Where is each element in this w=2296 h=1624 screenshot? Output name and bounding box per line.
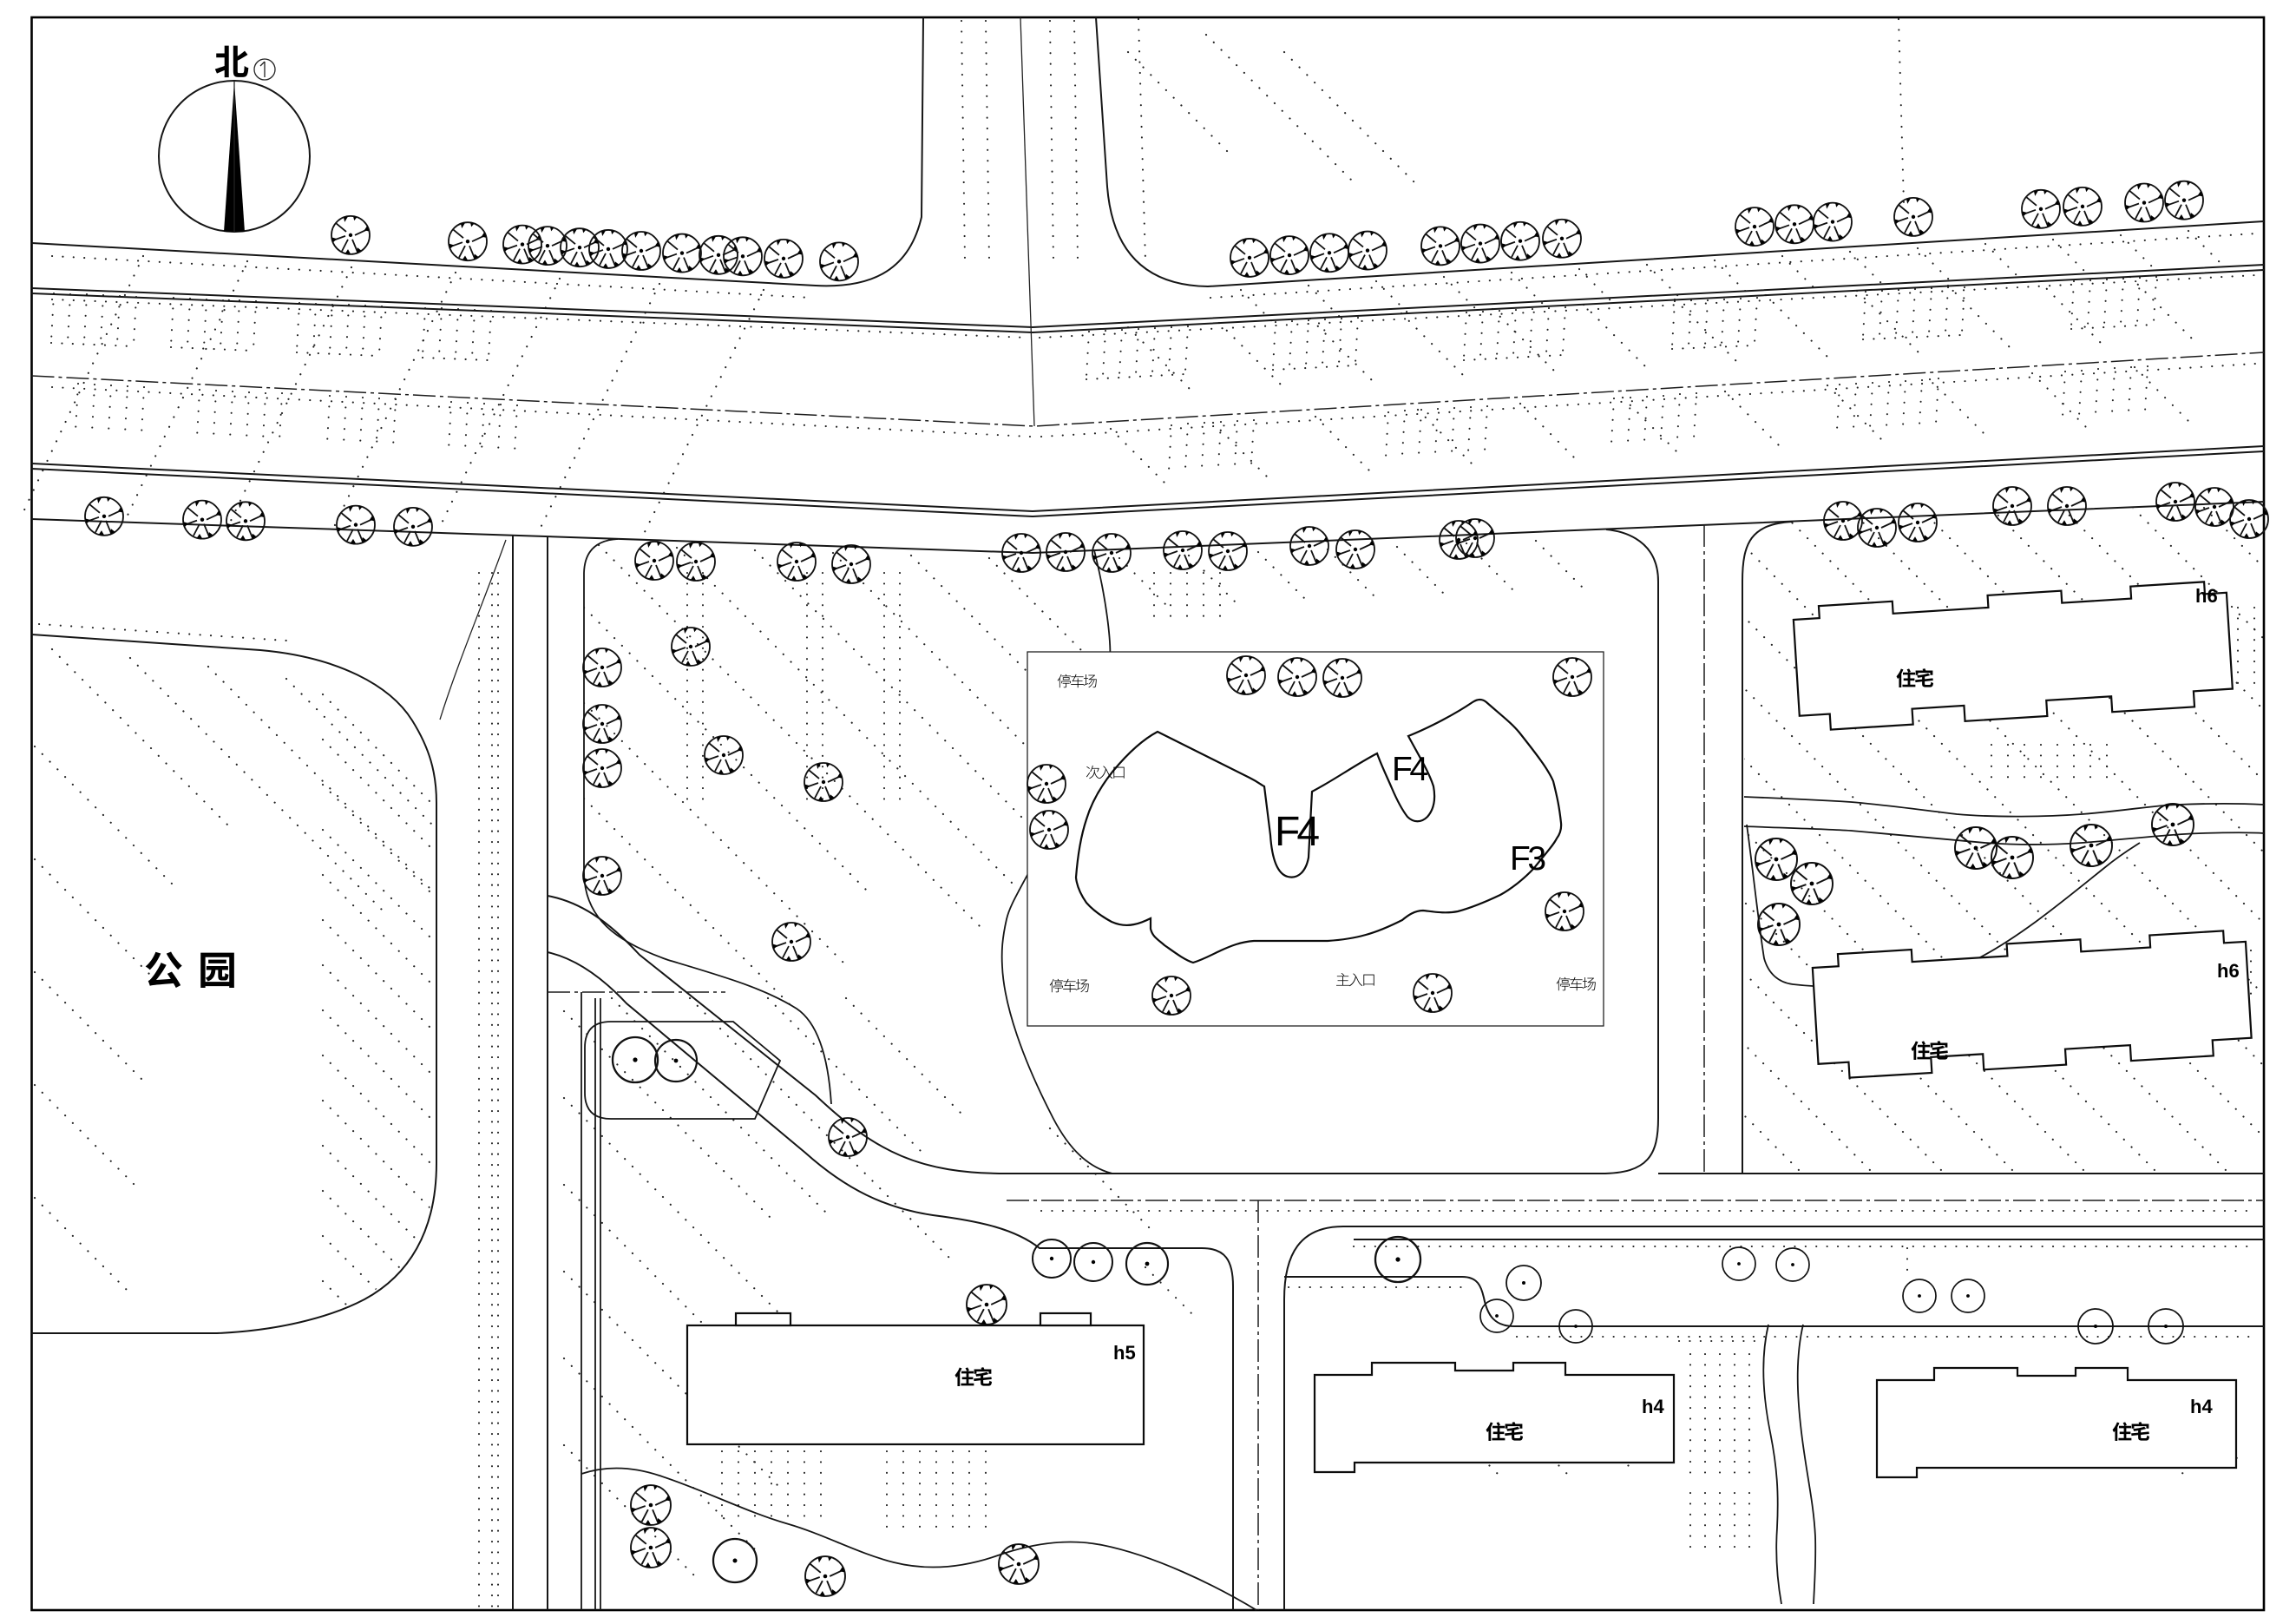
svg-text:F4: F4 [1275, 809, 1319, 855]
svg-text:h4: h4 [1642, 1396, 1664, 1417]
svg-text:h6: h6 [2195, 585, 2218, 607]
svg-text:h5: h5 [1113, 1342, 1136, 1364]
svg-text:h6: h6 [2217, 960, 2240, 982]
svg-text:F3: F3 [1510, 840, 1545, 878]
svg-text:F4: F4 [1392, 751, 1427, 788]
svg-text:h4: h4 [2190, 1396, 2213, 1417]
